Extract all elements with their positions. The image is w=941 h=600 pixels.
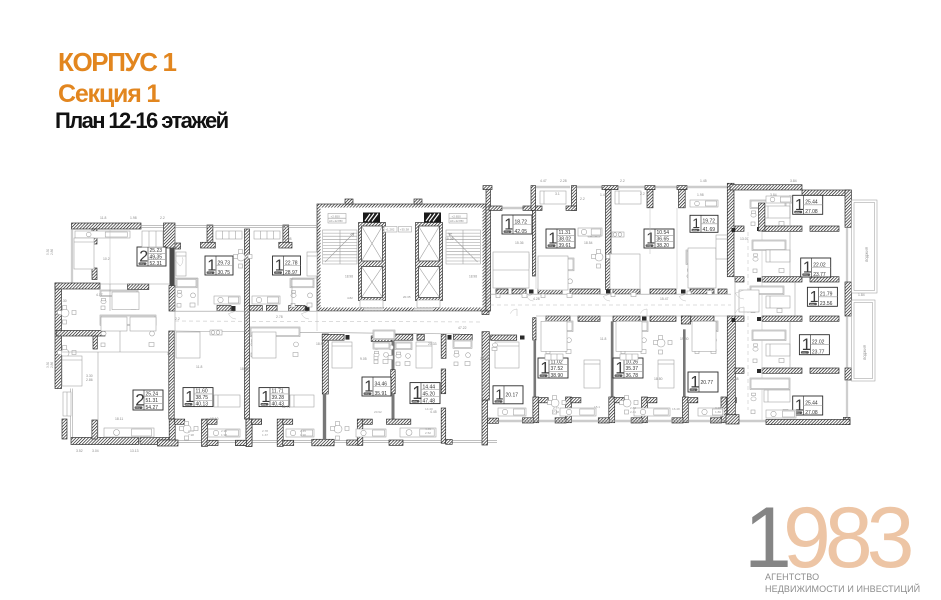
svg-text:19.80: 19.80 — [680, 337, 689, 341]
svg-text:18.98: 18.98 — [316, 342, 325, 346]
svg-text:35.91: 35.91 — [375, 391, 388, 397]
svg-text:18.11: 18.11 — [115, 417, 123, 421]
svg-text:4.17: 4.17 — [96, 293, 103, 297]
svg-text:18.98: 18.98 — [469, 275, 477, 279]
svg-text:42.05: 42.05 — [515, 229, 528, 235]
svg-text:1.90: 1.90 — [300, 433, 306, 437]
svg-text:23.56: 23.56 — [820, 301, 833, 307]
svg-text:4.47: 4.47 — [540, 179, 547, 183]
svg-text:40.13: 40.13 — [196, 401, 209, 407]
svg-text:1.37: 1.37 — [262, 433, 268, 437]
svg-text:13.13: 13.13 — [148, 257, 157, 261]
svg-text:47.22: 47.22 — [458, 326, 467, 330]
svg-text:20.35: 20.35 — [403, 295, 411, 299]
svg-text:2.2: 2.2 — [640, 192, 645, 196]
svg-text:+35.38: +35.38 — [400, 228, 410, 232]
svg-text:общ: общ — [275, 273, 279, 275]
svg-text:1: 1 — [692, 215, 700, 231]
svg-text:27.08: 27.08 — [805, 410, 818, 416]
svg-text:1.98: 1.98 — [697, 193, 704, 197]
svg-text:общ: общ — [496, 401, 500, 403]
svg-text:7.98: 7.98 — [188, 433, 194, 437]
svg-text:2.41: 2.41 — [630, 410, 636, 414]
svg-text:27.08: 27.08 — [805, 209, 818, 215]
svg-text:общ: общ — [616, 376, 620, 378]
svg-text:23.77: 23.77 — [813, 272, 826, 278]
svg-text:20.77: 20.77 — [701, 380, 714, 386]
svg-text:16.48: 16.48 — [672, 407, 680, 411]
svg-text:общ: общ — [262, 404, 266, 406]
svg-text:3.84: 3.84 — [790, 179, 797, 183]
svg-text:+2.650: +2.650 — [452, 214, 462, 218]
svg-text:ЛОДЖИЯ: ЛОДЖИЯ — [865, 246, 869, 262]
svg-text:2.2: 2.2 — [175, 317, 180, 321]
svg-text:общ: общ — [413, 401, 417, 403]
svg-text:+2.650: +2.650 — [331, 214, 341, 218]
svg-text:11.8: 11.8 — [100, 216, 106, 220]
svg-text:18.98: 18.98 — [345, 275, 353, 279]
svg-text:3.1: 3.1 — [555, 192, 560, 196]
svg-text:39.61: 39.61 — [559, 243, 572, 249]
svg-text:2.86: 2.86 — [50, 249, 54, 255]
svg-text:15.36: 15.36 — [445, 237, 454, 241]
svg-text:52.31: 52.31 — [150, 261, 163, 267]
svg-text:13.13: 13.13 — [130, 449, 139, 453]
svg-text:общ: общ — [693, 230, 697, 232]
svg-text:30.75: 30.75 — [218, 270, 231, 276]
svg-text:общ: общ — [186, 404, 190, 406]
svg-text:1.45: 1.45 — [600, 193, 607, 197]
svg-text:1.45: 1.45 — [700, 179, 707, 183]
svg-text:20.33: 20.33 — [428, 342, 437, 346]
svg-text:2.86: 2.86 — [50, 362, 54, 368]
svg-text:2.2: 2.2 — [160, 216, 165, 220]
svg-text:10.2: 10.2 — [103, 257, 110, 261]
svg-text:15.36: 15.36 — [515, 241, 524, 245]
svg-text:20.18: 20.18 — [480, 357, 489, 361]
svg-text:2.78: 2.78 — [276, 315, 283, 319]
svg-text:НЗ +32.850: НЗ +32.850 — [450, 219, 464, 223]
svg-text:18.54: 18.54 — [584, 241, 593, 245]
svg-text:10.2: 10.2 — [167, 352, 174, 356]
svg-text:2.2: 2.2 — [620, 179, 625, 183]
svg-text:11.71: 11.71 — [282, 405, 290, 409]
svg-text:+1.282: +1.282 — [385, 228, 395, 232]
svg-text:47.48: 47.48 — [423, 398, 436, 404]
svg-text:4.82: 4.82 — [347, 296, 353, 300]
svg-text:2.2: 2.2 — [580, 197, 585, 201]
svg-text:общ: общ — [549, 246, 553, 248]
svg-text:1.80: 1.80 — [715, 410, 721, 414]
svg-text:13.07: 13.07 — [740, 237, 749, 241]
svg-text:НЗ +32.850: НЗ +32.850 — [329, 219, 343, 223]
svg-text:7.38: 7.38 — [553, 410, 559, 414]
svg-text:15.1: 15.1 — [594, 405, 600, 409]
svg-text:общ: общ — [140, 264, 144, 266]
svg-text:4.28: 4.28 — [533, 297, 540, 301]
svg-text:54.27: 54.27 — [146, 405, 159, 411]
svg-text:18.80: 18.80 — [654, 377, 663, 381]
svg-text:14.40: 14.40 — [425, 407, 433, 411]
svg-text:36.78: 36.78 — [626, 373, 639, 379]
svg-text:20.92: 20.92 — [374, 410, 382, 414]
svg-text:5.30: 5.30 — [60, 299, 67, 303]
svg-text:18.80: 18.80 — [240, 367, 249, 371]
svg-text:общ: общ — [647, 246, 651, 248]
svg-text:28.97: 28.97 — [285, 270, 298, 276]
svg-text:1.98: 1.98 — [221, 433, 227, 437]
svg-text:2.52: 2.52 — [425, 431, 431, 435]
svg-text:общ: общ — [795, 212, 799, 214]
svg-text:общ: общ — [505, 232, 509, 234]
svg-text:общ: общ — [802, 352, 806, 354]
svg-text:2.86: 2.86 — [86, 378, 93, 382]
svg-text:41.69: 41.69 — [703, 227, 716, 233]
svg-text:18.10: 18.10 — [210, 417, 219, 421]
svg-text:общ: общ — [365, 394, 369, 396]
svg-text:11.8: 11.8 — [600, 337, 606, 341]
svg-text:общ: общ — [803, 275, 807, 277]
svg-text:21.98: 21.98 — [283, 237, 292, 241]
svg-text:общ: общ — [541, 376, 545, 378]
svg-text:общ: общ — [208, 273, 212, 275]
svg-text:3.52: 3.52 — [76, 449, 83, 453]
svg-text:3.84: 3.84 — [770, 193, 777, 197]
svg-text:3.04: 3.04 — [92, 449, 99, 453]
svg-text:общ: общ — [691, 390, 695, 392]
svg-text:1.84: 1.84 — [858, 293, 865, 297]
svg-text:23.77: 23.77 — [812, 350, 825, 356]
svg-text:ЛОДЖИЯ: ЛОДЖИЯ — [863, 344, 867, 360]
svg-text:15.47: 15.47 — [660, 297, 669, 301]
svg-text:38.90: 38.90 — [551, 373, 564, 379]
svg-text:2.28: 2.28 — [560, 179, 567, 183]
svg-text:16.48: 16.48 — [730, 377, 739, 381]
svg-text:50.47: 50.47 — [590, 317, 599, 321]
svg-text:общ: общ — [810, 304, 814, 306]
svg-text:11.8: 11.8 — [196, 365, 202, 369]
svg-text:общ: общ — [136, 408, 140, 410]
svg-text:20.17: 20.17 — [506, 393, 519, 399]
svg-text:38.20: 38.20 — [657, 243, 670, 249]
svg-text:9.05: 9.05 — [360, 357, 367, 361]
svg-text:1.98: 1.98 — [130, 216, 137, 220]
